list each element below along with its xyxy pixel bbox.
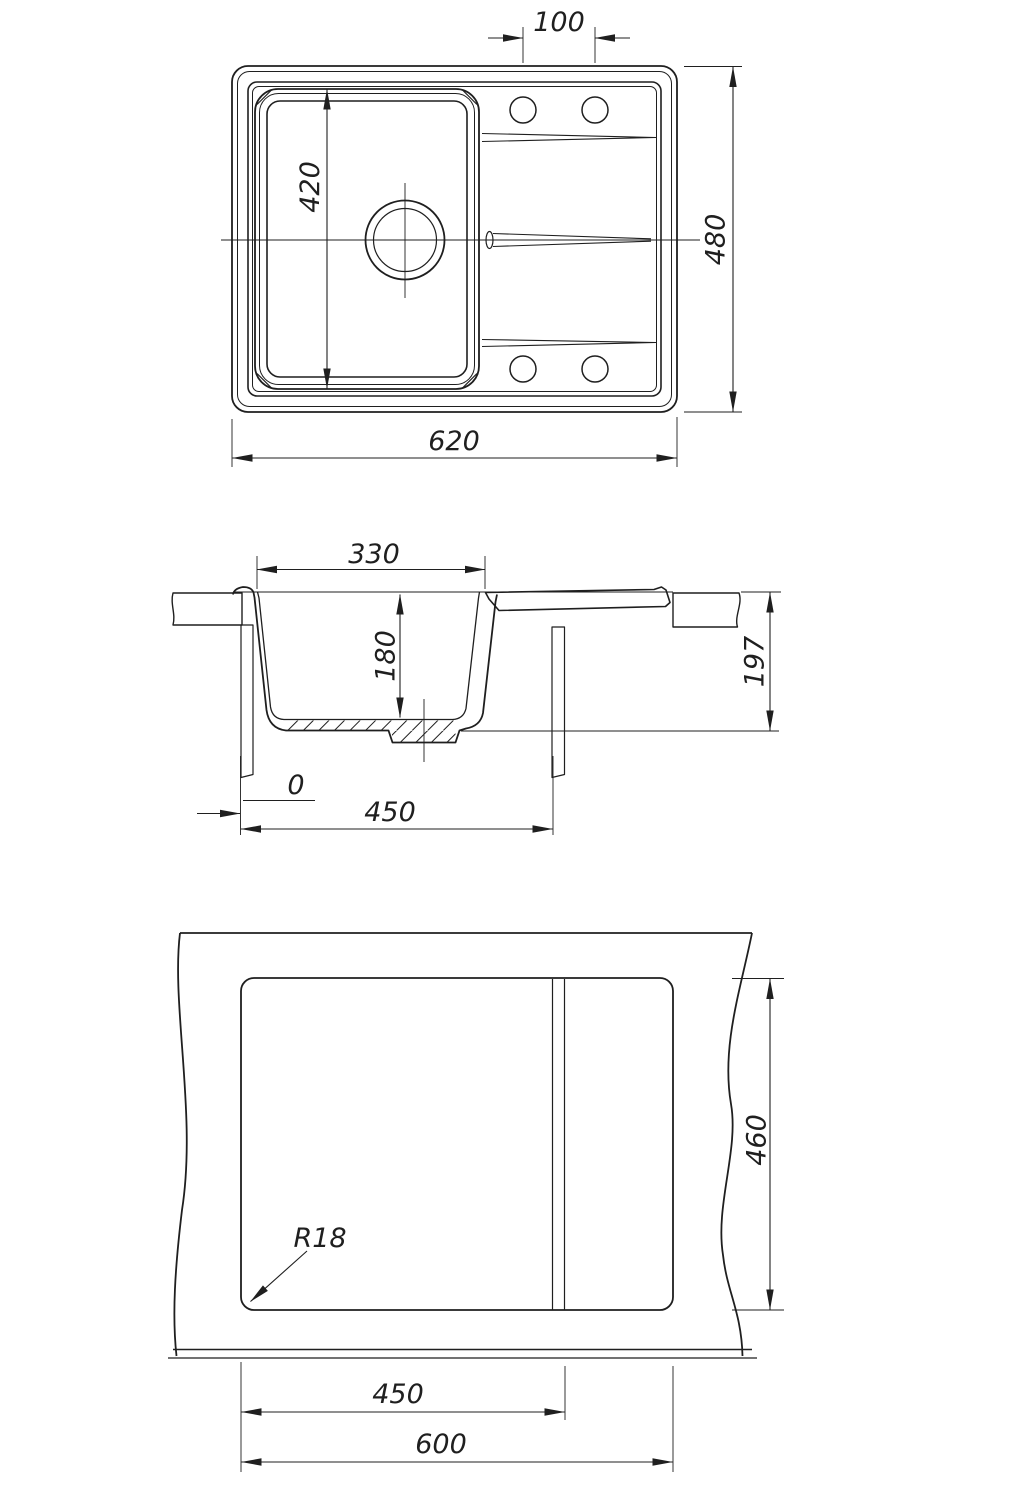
dim-hole-spacing: 100 xyxy=(488,7,630,63)
drainboard-groove xyxy=(482,134,656,138)
dim-label-overall-width: 620 xyxy=(428,426,480,457)
cabinet-wall-right xyxy=(552,627,565,778)
dim-zero-offset: 0 xyxy=(197,756,315,835)
dim-cutout-width: 600 xyxy=(242,1366,674,1472)
dim-bowl-top-width: 330 xyxy=(257,539,485,589)
dim-overall-width: 620 xyxy=(232,417,677,467)
corner-radius-label: R18 xyxy=(293,1223,346,1254)
section-view: 330 180 197 0 450 xyxy=(172,539,781,835)
drainboard-groove xyxy=(482,340,656,343)
drainboard-section xyxy=(486,587,671,611)
dim-label-bowl-length: 420 xyxy=(295,161,326,213)
sink-rim-inner-line xyxy=(253,87,657,392)
bowl-top-edge xyxy=(255,89,479,389)
top-view: 100 420 480 620 xyxy=(221,7,742,467)
sink-rim xyxy=(248,82,661,396)
dim-label-bowl-depth: 180 xyxy=(371,630,402,682)
cutout-view: 460 R18 450 600 xyxy=(168,933,784,1472)
dim-label-cutout-width: 600 xyxy=(415,1429,467,1460)
dim-label-hole-spacing: 100 xyxy=(533,7,585,38)
dim-label-overall-depth: 480 xyxy=(701,214,732,266)
leader-line xyxy=(251,1251,308,1302)
faucet-hole xyxy=(582,356,608,382)
countertop-left xyxy=(172,593,242,625)
faucet-hole xyxy=(582,97,608,123)
bowl xyxy=(255,89,479,389)
dim-label-cutout-depth: 460 xyxy=(742,1114,773,1166)
countertop-right xyxy=(673,593,740,627)
bowl-mid-edge xyxy=(260,94,475,385)
dim-bowl-depth: 180 xyxy=(371,595,402,718)
drawing-canvas: 100 420 480 620 xyxy=(0,0,1012,1492)
dim-overall-depth: 480 xyxy=(684,67,742,413)
faucet-hole xyxy=(510,356,536,382)
sink-outer-edge xyxy=(232,66,677,412)
drainboard-groove xyxy=(493,234,651,239)
drainboard-groove xyxy=(482,343,656,347)
dim-label-bowl-top-width: 330 xyxy=(348,539,400,570)
dim-mounting-height: 197 xyxy=(740,592,782,731)
bowl-section-inner xyxy=(258,592,480,720)
bowl-bottom-hatch xyxy=(285,721,455,731)
cutout-outline xyxy=(241,978,673,1310)
cabinet-wall-left xyxy=(241,625,253,778)
dim-label-mounting-height: 197 xyxy=(740,636,771,688)
dim-label-zero-offset: 0 xyxy=(287,770,304,801)
dim-label-partition-offset: 450 xyxy=(372,1379,424,1410)
sink-outer-edge-inner-line xyxy=(238,72,672,407)
dim-cutout-depth: 460 xyxy=(732,979,784,1311)
drawing-page: 100 420 480 620 xyxy=(0,0,1012,1492)
countertop-torn-edge-left xyxy=(174,933,186,1356)
faucet-hole xyxy=(510,97,536,123)
dim-bowl-length: 420 xyxy=(295,90,327,389)
corner-radius-callout: R18 xyxy=(251,1223,347,1302)
sink-outline xyxy=(232,66,677,412)
dim-partition-offset: 450 xyxy=(241,1362,565,1472)
drainboard-groove xyxy=(482,138,656,142)
drainboard-groove xyxy=(493,241,651,246)
dim-label-base-width: 450 xyxy=(364,797,416,828)
